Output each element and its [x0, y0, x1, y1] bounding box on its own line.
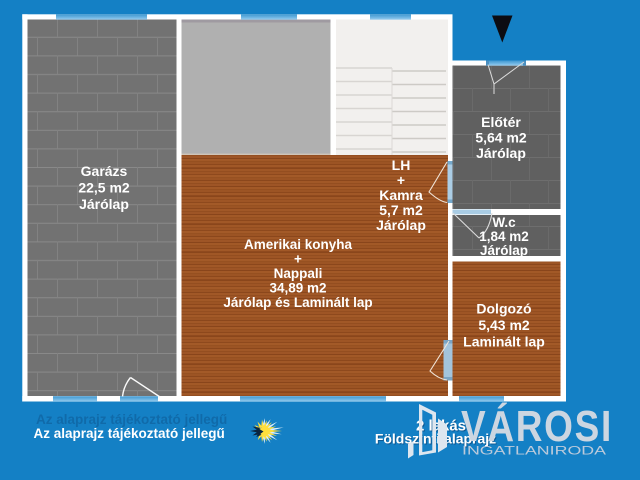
svg-text:INGATLANIRODA: INGATLANIRODA [462, 446, 607, 458]
svg-text:Az alaprajz tájékoztató jelleg: Az alaprajz tájékoztató jellegű [34, 426, 225, 441]
svg-text:VÁROSI: VÁROSI [461, 401, 613, 451]
svg-text:Az alaprajz tájékoztató jelleg: Az alaprajz tájékoztató jellegű [36, 412, 227, 427]
svg-text:Előtér5,64 m2Járólap: Előtér5,64 m2Járólap [475, 114, 527, 161]
svg-text:Garázs22,5 m2Járólap: Garázs22,5 m2Járólap [78, 163, 130, 212]
